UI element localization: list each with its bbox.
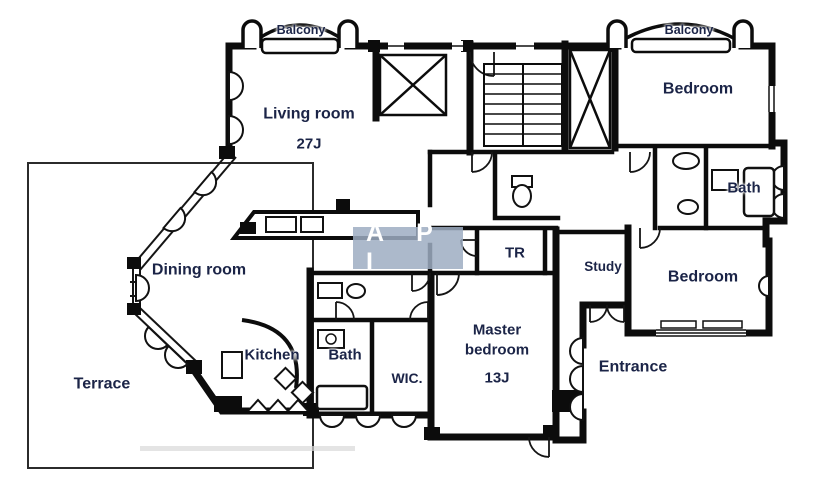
label-terrace: Terrace xyxy=(74,375,131,396)
label-balcony-right: Balcony xyxy=(665,22,714,38)
label-living-room-size: 27J xyxy=(296,134,321,154)
label-entrance: Entrance xyxy=(599,358,667,379)
label-wic: WIC. xyxy=(391,369,422,387)
staircase xyxy=(484,64,562,146)
label-kitchen: Kitchen xyxy=(244,345,299,365)
label-balcony-left: Balcony xyxy=(277,22,326,38)
label-master-bedroom-size: 13J xyxy=(484,368,509,388)
label-living-room: Living room xyxy=(263,105,355,126)
label-master-bedroom: Master bedroom xyxy=(451,321,543,360)
label-bedroom-top: Bedroom xyxy=(663,80,733,101)
label-study: Study xyxy=(584,258,622,276)
api-watermark: A P I xyxy=(353,227,463,269)
floor-plan-page: Balcony Balcony Living room 27J Bedroom … xyxy=(0,0,813,497)
label-bath-right: Bath xyxy=(727,178,760,198)
label-dining-room: Dining room xyxy=(152,261,246,282)
label-tr: TR xyxy=(505,243,525,263)
label-bath-left: Bath xyxy=(328,345,361,365)
label-bedroom-right: Bedroom xyxy=(668,268,738,289)
